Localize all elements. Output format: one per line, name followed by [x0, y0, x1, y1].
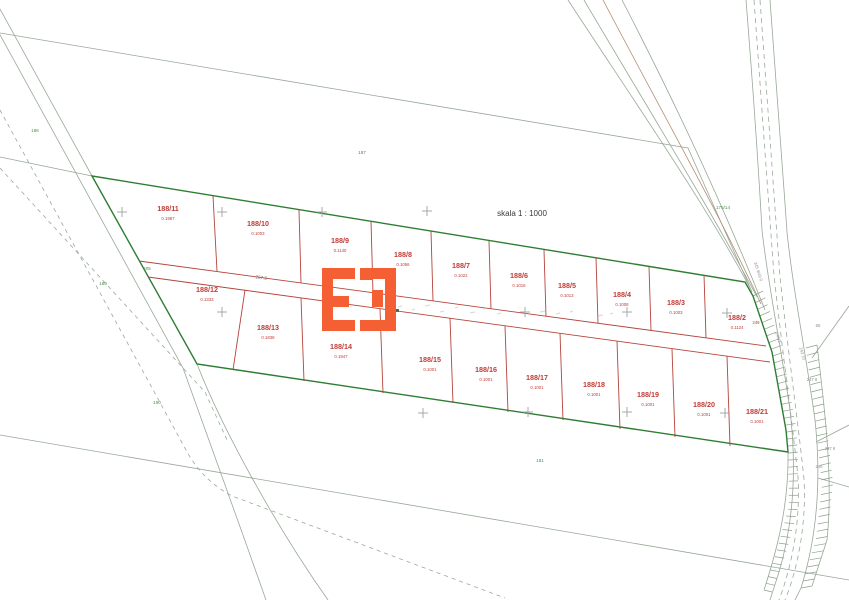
embankment-tick [812, 389, 823, 392]
watermark-mark [598, 315, 603, 316]
parcel-area-label: 0.1001 [530, 385, 544, 390]
embankment-tick [806, 345, 817, 348]
parcel-divider [489, 241, 491, 309]
embankment-tick [808, 565, 819, 567]
survey-annotation-label: 249 [753, 320, 761, 325]
embankment-tick [813, 404, 824, 407]
embankment-tick [810, 558, 821, 560]
parcel-area-label: 0.1838 [261, 335, 275, 340]
parcel-number-label: 188/20 [693, 400, 715, 409]
map-canvas: 188/110.1987188/100.1003188/90.1140188/8… [0, 0, 849, 600]
corridor-line [148, 277, 770, 362]
embankment-tick [812, 551, 824, 553]
parcel-number-label: 188/13 [257, 323, 279, 332]
grid-cross-icon [520, 307, 530, 317]
parcel-area-label: 0.1016 [512, 283, 526, 288]
watermark-mark [556, 313, 560, 314]
watermark-mark [440, 311, 444, 312]
neighbor-parcel-label: 190 [153, 400, 161, 405]
parcel-number-label: 188/16 [475, 365, 497, 374]
embankment-tick [809, 367, 820, 370]
watermark-mark [483, 308, 486, 309]
embankment-tick [768, 577, 777, 579]
parcel-divider [431, 231, 433, 301]
parcel-area-label: 0.1001 [641, 402, 655, 407]
parcel-area-label: 0.1140 [334, 248, 347, 253]
parcel-number-label: 188/10 [247, 219, 269, 228]
embankment-tick [821, 470, 832, 472]
grid-cross-icon [317, 207, 327, 217]
parcel-area-label: 0.1003 [669, 310, 683, 315]
parcel-number-label: 188/11 [157, 204, 179, 213]
watermark-mark [497, 313, 501, 314]
parcel-area-label: 0.1008 [615, 302, 629, 307]
left-road-edge [0, 0, 92, 176]
parcel-number-label: 188/4 [613, 290, 631, 299]
parcel-area-label: 0.1022 [454, 273, 468, 278]
survey-annotation-label: 249 [816, 464, 824, 469]
watermark-mark [570, 311, 573, 312]
neighbor-parcel-label: 187 [358, 150, 366, 155]
embankment-tick [783, 409, 793, 411]
embankment-tick [816, 537, 827, 539]
embankment-tick [786, 516, 796, 517]
parcel-number-label: 188/9 [331, 236, 349, 245]
parcel-area-label: 0.1001 [587, 392, 601, 397]
parcel-divider [544, 250, 546, 316]
embankment-tick [783, 530, 793, 531]
embankment-tick [811, 382, 822, 385]
survey-annotation-label: 65 [816, 323, 821, 328]
parcel-number-label: 188/19 [637, 390, 659, 399]
left-road-edge [0, 2, 266, 600]
embankment-tick [781, 536, 791, 537]
grid-cross-icon [117, 207, 127, 217]
parcel-number-label: 188/15 [419, 355, 441, 364]
embankment-tick [815, 419, 826, 422]
neighbor-parcel-label: 186 [31, 128, 39, 133]
watermark-mark [540, 311, 545, 312]
parcel-divider [704, 275, 706, 338]
watermark-mark [455, 307, 458, 308]
embankment-tick [785, 424, 795, 426]
parcel-area-label: 0.1001 [697, 412, 711, 417]
parcel-divider [649, 267, 651, 330]
neighbor-parcel-label: 175/14 [716, 205, 730, 210]
watermark-mark [425, 305, 430, 306]
parcel-divider [299, 210, 301, 283]
parcel-number-label: 188/21 [746, 407, 768, 416]
embankment-tick [788, 474, 798, 475]
parcel-number-label: 188/7 [452, 261, 470, 270]
parcel-number-label: 188/3 [667, 298, 685, 307]
survey-crosses [117, 206, 732, 418]
parcel-divider [505, 326, 508, 412]
parcel-divider [617, 341, 620, 429]
survey-annotation-label: 247 8 [807, 377, 818, 382]
embankment-tick [816, 426, 827, 429]
embankment-tick [786, 431, 796, 433]
embankment-tick [760, 312, 770, 317]
parcel-divider [450, 318, 453, 403]
parcel-area-label: 0.1001 [479, 377, 493, 382]
map-labels: 188/110.1987188/100.1003188/90.1140188/8… [31, 128, 836, 469]
embankment-tick [801, 586, 812, 588]
converging-line [568, 0, 750, 288]
grid-cross-icon [217, 307, 227, 317]
field-line [0, 435, 849, 580]
grid-cross-icon [422, 206, 432, 216]
grid-cross-icon [622, 407, 632, 417]
embankment-tick [822, 478, 833, 480]
embankment-tick [808, 360, 819, 363]
neighbor-parcel-label: 189 [99, 281, 107, 286]
right-road-left-edge [746, 0, 793, 600]
parcel-number-label: 188/18 [583, 380, 605, 389]
scale-label: skala 1 : 1000 [497, 209, 547, 218]
measurement-label: 257.3 [255, 274, 267, 281]
parcel-divider [672, 349, 675, 437]
grid-cross-icon [622, 307, 632, 317]
parcel-area-label: 0.1947 [334, 354, 348, 359]
embankment-tick [814, 544, 826, 546]
survey-annotation-label: 245 9/49 0 [753, 261, 764, 282]
embankment-tick [764, 590, 772, 592]
boundary-polygon [92, 176, 788, 452]
embankment-tick [817, 433, 828, 436]
field-line [0, 33, 752, 292]
parcel-area-label: 0.1003 [251, 231, 265, 236]
company-logo-icon [322, 268, 396, 331]
parcel-divider [560, 333, 563, 420]
embankment-tick [817, 529, 828, 531]
grid-cross-icon [217, 207, 227, 217]
embankment-tick [781, 402, 791, 404]
parcel-area-label: 0.1333 [200, 297, 214, 302]
parcel-divider [301, 298, 304, 381]
watermark-mark [470, 312, 475, 313]
parcel-lines [139, 196, 770, 446]
parcel-divider [371, 221, 373, 293]
embankment-tick [784, 523, 794, 524]
parcel-divider [213, 196, 217, 271]
embankment-tick [788, 445, 798, 446]
parcel-area-label: 0.1124 [731, 325, 744, 330]
green-boundary [92, 176, 788, 452]
embankment-tick [821, 492, 832, 494]
survey-annotation-label: 247 9 [825, 446, 836, 451]
embankment-tick [766, 583, 774, 585]
parcel-area-label: 0.1013 [560, 293, 574, 298]
converging-line [584, 0, 757, 297]
embankment-tick [771, 346, 781, 350]
watermark-mark [610, 313, 613, 314]
neighbor-parcel-label: 505 [143, 266, 151, 271]
parcel-area-label: 0.1001 [750, 419, 764, 424]
survey-annotation-label: 243 10 [798, 347, 806, 361]
dashed-track [0, 168, 228, 442]
converging-line [622, 0, 765, 310]
embankment-tick [788, 452, 798, 453]
embankment-tick [818, 522, 829, 524]
embankment-tick [807, 352, 818, 355]
parcel-number-label: 188/2 [728, 313, 746, 322]
embankment-tick [764, 325, 774, 329]
embankment-tick [812, 397, 823, 400]
left-road-edge [197, 364, 328, 600]
parcel-divider [233, 290, 245, 370]
field-line [0, 157, 92, 176]
survey-annotation-label: 246/2 [774, 332, 782, 344]
embankment-tick [758, 305, 768, 310]
embankment-tick [818, 441, 829, 444]
parcel-number-label: 188/14 [330, 342, 352, 351]
embankment-tick [771, 570, 780, 572]
neighbor-parcel-label: 181 [536, 458, 544, 463]
embankment-tick [784, 416, 794, 418]
parcel-divider [727, 356, 730, 446]
embankment-tick [773, 563, 782, 565]
grid-cross-icon [418, 408, 428, 418]
embankment-tick [822, 485, 833, 487]
embankment-tick [803, 579, 814, 581]
parcel-number-label: 188/17 [526, 373, 548, 382]
watermark-mark [398, 306, 402, 307]
parcel-area-label: 0.1056 [396, 262, 410, 267]
parcel-number-label: 188/5 [558, 281, 576, 290]
embankment-tick [814, 411, 825, 414]
parcel-divider [596, 258, 598, 323]
cadastral-map: 188/110.1987188/100.1003188/90.1140188/8… [0, 0, 849, 600]
embankment-tick [762, 318, 772, 322]
grid-cross-icon [523, 407, 533, 417]
embankment-tick [819, 514, 830, 516]
parcel-number-label: 188/12 [196, 285, 218, 294]
embankment-tick [787, 438, 797, 439]
watermark-mark [412, 309, 415, 310]
embankment-tick [779, 543, 789, 544]
parcel-area-label: 0.1001 [423, 367, 437, 372]
road-center-dash [760, 0, 804, 600]
parcel-number-label: 188/6 [510, 271, 528, 280]
parcel-area-label: 0.1987 [161, 216, 175, 221]
parcel-number-label: 188/8 [394, 250, 412, 259]
dashed-track [0, 110, 505, 598]
